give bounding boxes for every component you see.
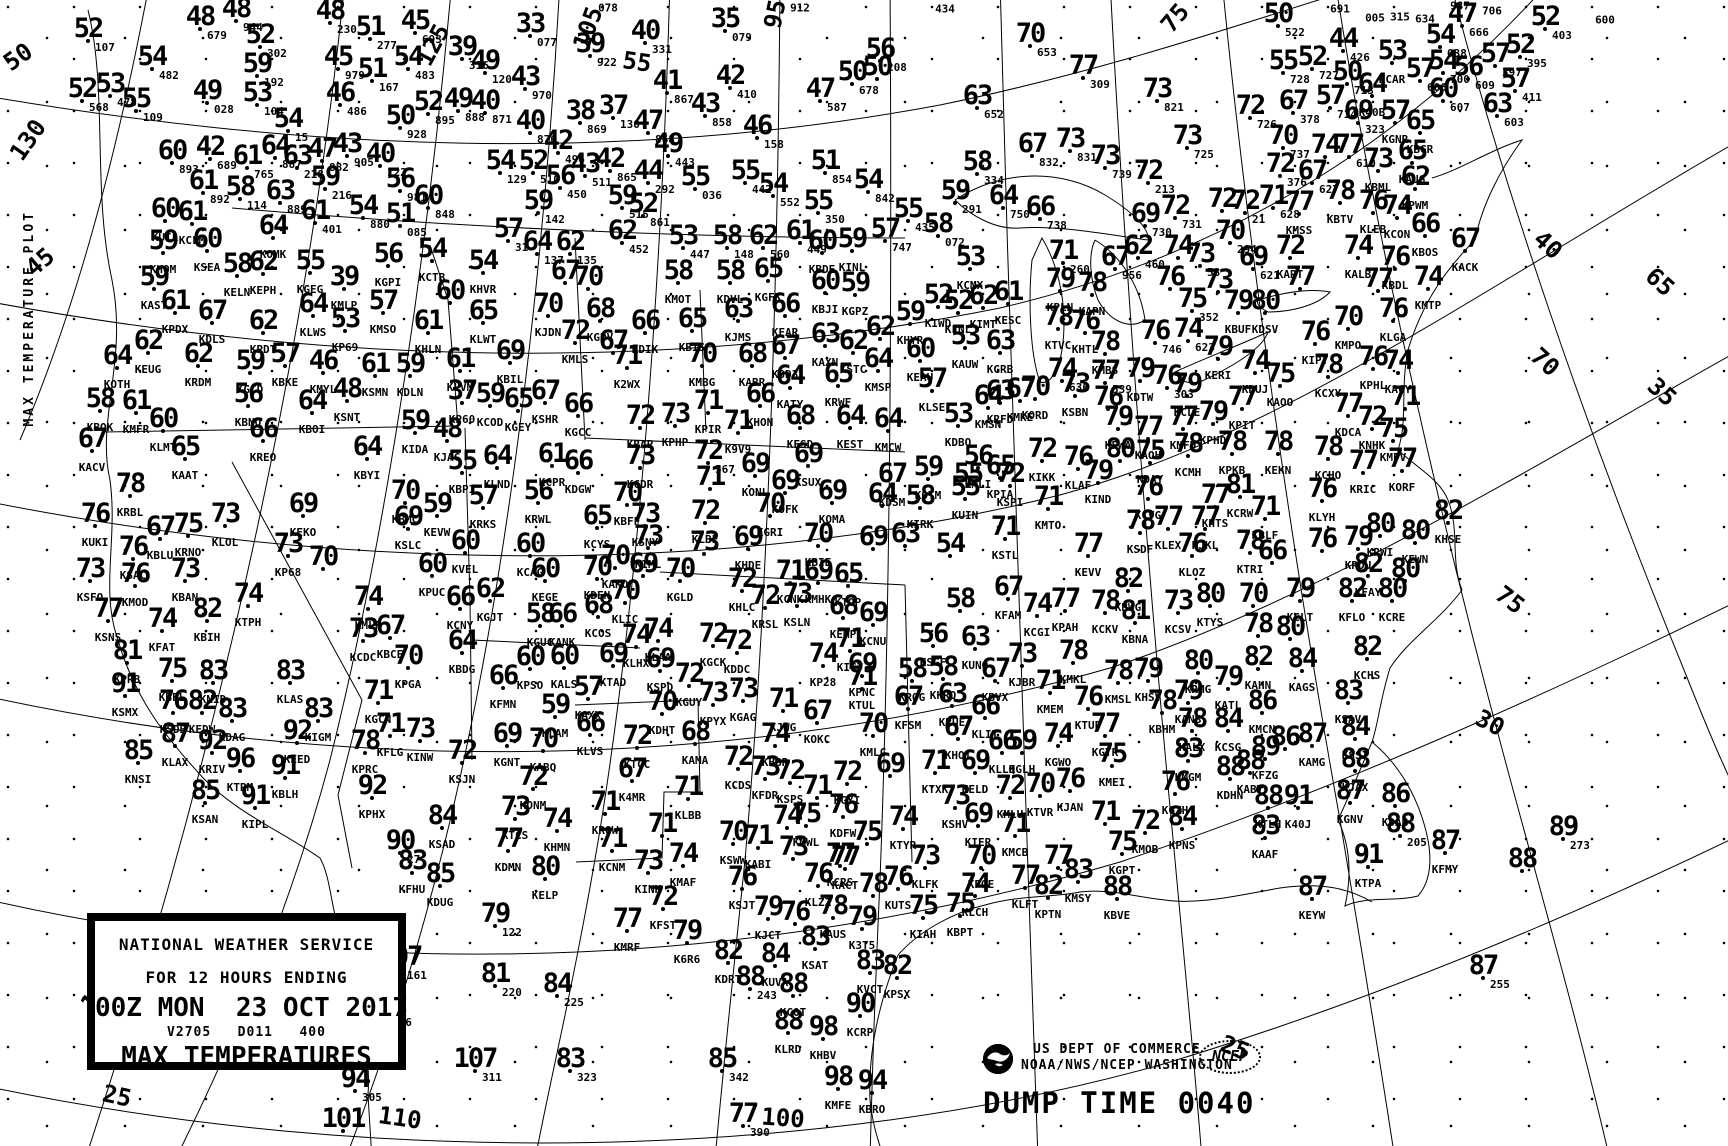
station-dot xyxy=(646,871,650,875)
station-dot xyxy=(1056,327,1060,331)
station-aux: 167 xyxy=(379,82,399,93)
station-dot xyxy=(756,846,760,850)
station-dot xyxy=(963,497,967,501)
station-dot xyxy=(1076,880,1080,884)
station-dot xyxy=(234,19,238,23)
station-dot xyxy=(1396,371,1400,375)
station-dot xyxy=(376,701,380,705)
station-id: KMSY xyxy=(1065,893,1092,904)
station-dot xyxy=(378,164,382,168)
station-dot xyxy=(1390,61,1394,65)
station-dot xyxy=(1143,831,1147,835)
station-dot xyxy=(1013,834,1017,838)
station-dot xyxy=(880,504,884,508)
station-aux: 731 xyxy=(1182,219,1202,230)
station-id: KBLU xyxy=(147,550,174,561)
station-id: KLVS xyxy=(577,746,604,757)
station-id: KVEL xyxy=(452,564,479,575)
station-dot xyxy=(783,314,787,318)
station-id: KBJI xyxy=(812,304,839,315)
station-dot xyxy=(1185,394,1189,398)
station-dot xyxy=(813,947,817,951)
station-dot xyxy=(345,154,349,158)
station-dot xyxy=(795,604,799,608)
station-dot xyxy=(741,699,745,703)
station-dot xyxy=(625,503,629,507)
station-aux: 871 xyxy=(492,114,512,125)
station-dot xyxy=(1006,302,1010,306)
station-dot xyxy=(1463,249,1467,253)
station-dot xyxy=(975,172,979,176)
station-dot xyxy=(740,589,744,593)
station-dot xyxy=(278,201,282,205)
station-aux: 848 xyxy=(435,209,455,220)
station-dot xyxy=(313,221,317,225)
station-dot xyxy=(460,651,464,655)
station-dot xyxy=(1186,454,1190,458)
station-id: KCDS xyxy=(725,780,752,791)
station-dot xyxy=(323,187,327,191)
station-dot xyxy=(353,1089,357,1093)
station-dot xyxy=(1291,111,1295,115)
station-dot xyxy=(170,161,174,165)
station-dot xyxy=(583,174,587,178)
station-id: KRBL xyxy=(117,507,144,518)
station-dot xyxy=(513,817,517,821)
station-dot xyxy=(906,219,910,223)
station-dot xyxy=(871,547,875,551)
station-dot xyxy=(1356,121,1360,125)
station-id: KACV xyxy=(79,462,106,473)
station-dot xyxy=(553,715,557,719)
station-dot xyxy=(406,527,410,531)
station-dot xyxy=(528,34,532,38)
station-dot xyxy=(731,842,735,846)
station-dot xyxy=(246,604,250,608)
station-aux: 120 xyxy=(492,74,512,85)
station-dot xyxy=(736,431,740,435)
station-dot xyxy=(896,887,900,891)
ncep-logo: NCEP xyxy=(1199,1040,1261,1074)
station-dot xyxy=(1155,99,1159,103)
station-id: KHLC xyxy=(729,602,756,613)
station-dot xyxy=(1423,234,1427,238)
station-id: KCSV xyxy=(1165,624,1192,635)
station-dot xyxy=(170,679,174,683)
station-dot xyxy=(426,331,430,335)
station-dot xyxy=(1348,801,1352,805)
station-id: KTAD xyxy=(600,677,627,688)
station-id: KP68 xyxy=(275,567,302,578)
station-dot xyxy=(1310,67,1314,71)
station-dot xyxy=(1270,561,1274,565)
station-id: KCNM xyxy=(599,862,626,873)
map-title-vertical: MAX TEMPERATURE PLOT xyxy=(22,210,37,427)
station-aux: 309 xyxy=(1090,79,1110,90)
station-dot xyxy=(963,346,967,350)
station-dot xyxy=(741,1124,745,1128)
station-id: KPDX xyxy=(162,324,189,335)
station-id: KP28 xyxy=(810,677,837,688)
station-dot xyxy=(483,71,487,75)
station-dot xyxy=(1240,407,1244,411)
station-dot xyxy=(1345,82,1349,86)
station-dot xyxy=(1138,379,1142,383)
station-dot xyxy=(816,544,820,548)
station-dot xyxy=(286,554,290,558)
station-dot xyxy=(1168,287,1172,291)
station-dot xyxy=(641,574,645,578)
station-id: KCRW xyxy=(1227,508,1254,519)
station-id: KIPL xyxy=(242,819,269,830)
station-dot xyxy=(1173,216,1177,220)
station-dot xyxy=(930,389,934,393)
station-dot xyxy=(848,426,852,430)
station-aux-fragment: 706 xyxy=(1482,6,1502,17)
station-dot xyxy=(1000,751,1004,755)
station-dot xyxy=(576,414,580,418)
station-id: KSDF xyxy=(1127,544,1154,555)
station-aux: 291 xyxy=(962,204,982,215)
station-id: KIAH xyxy=(910,929,937,940)
station-id: KMFE xyxy=(825,1100,852,1111)
station-dot xyxy=(681,864,685,868)
station-dot xyxy=(568,1069,572,1073)
station-dot xyxy=(610,849,614,853)
station-dot xyxy=(1081,76,1085,80)
station-id: KGAG xyxy=(730,712,757,723)
station-dot xyxy=(133,584,137,588)
station-id: KSLN xyxy=(784,617,811,628)
station-dot xyxy=(328,21,332,25)
station-id: KBYI xyxy=(354,470,381,481)
station-dot xyxy=(643,41,647,45)
station-dot xyxy=(1226,729,1230,733)
legend-valid-time: 00Z MON 23 OCT 2017 xyxy=(95,993,398,1023)
station-dot xyxy=(1320,499,1324,503)
station-dot xyxy=(573,341,577,345)
station-dot xyxy=(398,224,402,228)
station-id: KRIC xyxy=(1350,484,1377,495)
station-dot xyxy=(693,742,697,746)
legend-meta: V2705 D011 400 xyxy=(95,1025,398,1040)
station-dot xyxy=(283,364,287,368)
station-dot xyxy=(678,579,682,583)
station-dot xyxy=(1398,834,1402,838)
station-dot xyxy=(531,787,535,791)
station-aux: 273 xyxy=(1570,840,1590,851)
station-aux: 452 xyxy=(629,244,649,255)
station-dot xyxy=(1073,394,1077,398)
station-id: KHBV xyxy=(810,1050,837,1061)
station-aux: 411 xyxy=(1522,92,1542,103)
station-dot xyxy=(1238,495,1242,499)
station-dot xyxy=(473,1069,477,1073)
station-id: KLSE xyxy=(919,402,946,413)
station-dot xyxy=(1326,457,1330,461)
station-dot xyxy=(1153,341,1157,345)
station-id: KLAX xyxy=(162,757,189,768)
station-dot xyxy=(1400,469,1404,473)
station-dot xyxy=(1361,471,1365,475)
station-id: KAAF xyxy=(1252,849,1279,860)
station-dot xyxy=(271,236,275,240)
station-dot xyxy=(1020,664,1024,668)
station-id: KORF xyxy=(1389,482,1416,493)
station-dot xyxy=(361,639,365,643)
station-aux: 892 xyxy=(210,194,230,205)
station-aux-fragment: 315 xyxy=(1390,12,1410,23)
station-aux: 403 xyxy=(1552,30,1572,41)
station-dot xyxy=(1371,367,1375,371)
station-aux: 342 xyxy=(729,1072,749,1083)
station-dot xyxy=(843,867,847,871)
station-aux-fragment: 078 xyxy=(598,3,618,14)
station-id: KSJT xyxy=(729,900,756,911)
station-id: KPNS xyxy=(1169,840,1196,851)
station-aux: 225 xyxy=(564,997,584,1008)
station-dot xyxy=(1106,407,1110,411)
station-dot xyxy=(1096,481,1100,485)
station-dot xyxy=(161,251,165,255)
station-dot xyxy=(1296,806,1300,810)
station-dot xyxy=(1126,589,1130,593)
station-dot xyxy=(1176,611,1180,615)
station-aux: 738 xyxy=(1047,220,1067,231)
station-id: KBRO xyxy=(859,1104,886,1115)
station-id: KSAD xyxy=(429,839,456,850)
station-dot xyxy=(901,827,905,831)
station-dot xyxy=(768,514,772,518)
station-dot xyxy=(983,716,987,720)
station-dot xyxy=(1090,293,1094,297)
station-dot xyxy=(931,644,935,648)
station-dot xyxy=(1116,427,1120,431)
station-dot xyxy=(758,404,762,408)
station-dot xyxy=(1495,114,1499,118)
station-dot xyxy=(753,474,757,478)
station-aux: 482 xyxy=(159,70,179,81)
station-dot xyxy=(1038,217,1042,221)
station-dot xyxy=(230,719,234,723)
station-dot xyxy=(1068,149,1072,153)
station-dot xyxy=(596,615,600,619)
station-aux: 854 xyxy=(832,174,852,185)
station-dot xyxy=(708,487,712,491)
station-dot xyxy=(506,239,510,243)
station-dot xyxy=(1118,459,1122,463)
station-dot xyxy=(1281,71,1285,75)
station-aux: 739 xyxy=(1112,169,1132,180)
station-dot xyxy=(438,884,442,888)
station-dot xyxy=(506,849,510,853)
station-aux: 928 xyxy=(407,129,427,140)
station-dot xyxy=(816,581,820,585)
station-id: KINW xyxy=(407,752,434,763)
station-aux: 842 xyxy=(875,193,895,204)
station-dot xyxy=(361,216,365,220)
legend-title: NATIONAL WEATHER SERVICE xyxy=(95,935,398,954)
station-id: KAUW xyxy=(952,359,979,370)
station-dot xyxy=(343,329,347,333)
station-id: KDHT xyxy=(649,725,676,736)
station-aux: 142 xyxy=(545,214,565,225)
station-dot xyxy=(386,264,390,268)
station-id: KLBB xyxy=(675,810,702,821)
station-dot xyxy=(595,577,599,581)
station-dot xyxy=(261,331,265,335)
station-dot xyxy=(1198,264,1202,268)
station-aux: 109 xyxy=(143,112,163,123)
station-dot xyxy=(536,211,540,215)
station-dot xyxy=(200,711,204,715)
station-aux: 447 xyxy=(690,249,710,260)
station-dot xyxy=(1297,212,1301,216)
station-dot xyxy=(1186,339,1190,343)
station-id: KTVC xyxy=(1045,340,1072,351)
station-dot xyxy=(183,457,187,461)
station-id: KLFK xyxy=(912,879,939,890)
station-aux: 603 xyxy=(1504,117,1524,128)
station-id: KMRF xyxy=(614,942,641,953)
station-dot xyxy=(1391,319,1395,323)
station-id: KMFR xyxy=(123,424,150,435)
station-id: KGLD xyxy=(667,592,694,603)
station-dot xyxy=(493,924,497,928)
station-dot xyxy=(791,857,795,861)
station-dot xyxy=(1190,554,1194,558)
station-dot xyxy=(845,782,849,786)
station-id: KEYW xyxy=(1299,910,1326,921)
station-aux: 079 xyxy=(732,32,752,43)
station-aux: 956 xyxy=(1122,270,1142,281)
station-aux: 401 xyxy=(322,224,342,235)
station-aux-fragment: 005 xyxy=(1365,13,1385,24)
station-dot xyxy=(235,274,239,278)
station-id: KPAH xyxy=(1052,622,1079,633)
station-aux: 861 xyxy=(650,217,670,228)
station-id: KSMN xyxy=(362,387,389,398)
station-aux: 679 xyxy=(207,30,227,41)
station-dot xyxy=(1146,181,1150,185)
station-dot xyxy=(1376,169,1380,173)
station-aux: 522 xyxy=(1285,27,1305,38)
station-dot xyxy=(1248,551,1252,555)
station-dot xyxy=(903,544,907,548)
station-id: KFAT xyxy=(149,642,176,653)
station-dot xyxy=(255,103,259,107)
station-dot xyxy=(106,619,110,623)
station-id: KCDC xyxy=(350,652,377,663)
station-dot xyxy=(1251,267,1255,271)
station-dot xyxy=(1228,241,1232,245)
station-aux: 410 xyxy=(737,89,757,100)
station-dot xyxy=(818,99,822,103)
station-dot xyxy=(201,191,205,195)
station-dot xyxy=(1288,637,1292,641)
station-dot xyxy=(563,281,567,285)
station-id: KRDM xyxy=(185,377,212,388)
station-dot xyxy=(953,201,957,205)
station-id: KCRP xyxy=(847,1027,874,1038)
station-dot xyxy=(1133,621,1137,625)
station-id: KRSL xyxy=(752,619,779,630)
station-dot xyxy=(816,884,820,888)
station-dot xyxy=(766,279,770,283)
station-dot xyxy=(381,311,385,315)
station-dot xyxy=(578,121,582,125)
station-aux: 243 xyxy=(757,990,777,1001)
station-dot xyxy=(886,429,890,433)
station-id: KMEI xyxy=(1099,777,1126,788)
station-dot xyxy=(1263,517,1267,521)
station-dot xyxy=(921,916,925,920)
station-dot xyxy=(245,166,249,170)
station-dot xyxy=(1176,256,1180,260)
station-id: KLOL xyxy=(212,537,239,548)
station-dot xyxy=(841,815,845,819)
station-id: KSTL xyxy=(992,550,1019,561)
station-aux: 107 xyxy=(95,42,115,53)
station-dot xyxy=(90,449,94,453)
station-id: KUKI xyxy=(82,537,109,548)
station-dot xyxy=(1008,796,1012,800)
station-dot xyxy=(1248,771,1252,775)
station-aux: 746 xyxy=(1162,344,1182,355)
station-dot xyxy=(1211,422,1215,426)
station-id: KMSL xyxy=(1105,694,1132,705)
station-id: KPIR xyxy=(695,424,722,435)
station-dot xyxy=(823,171,827,175)
station-dot xyxy=(536,501,540,505)
station-dot xyxy=(203,801,207,805)
station-dot xyxy=(535,252,539,256)
station-id: KHTL xyxy=(1072,344,1099,355)
station-id: KACK xyxy=(1452,262,1479,273)
station-id: K6R6 xyxy=(674,954,701,965)
station-dot xyxy=(690,329,694,333)
station-dot xyxy=(93,524,97,528)
station-aux: 693 xyxy=(422,34,442,45)
station-id: KPSO xyxy=(517,680,544,691)
station-dot xyxy=(88,579,92,583)
station-dot xyxy=(1033,397,1037,401)
station-dot xyxy=(308,271,312,275)
station-dot xyxy=(1365,657,1369,661)
station-id: KMOD xyxy=(122,597,149,608)
station-id: KBTV xyxy=(1327,214,1354,225)
station-dot xyxy=(755,136,759,140)
station-id: KHVR xyxy=(470,284,497,295)
station-id: KMSO xyxy=(370,324,397,335)
station-dot xyxy=(823,291,827,295)
station-dot xyxy=(365,457,369,461)
station-dot xyxy=(1561,837,1565,841)
station-aux: 450 xyxy=(567,189,587,200)
station-dot xyxy=(771,194,775,198)
station-id: KORD xyxy=(1022,410,1049,421)
station-dot xyxy=(736,319,740,323)
station-id: KDSV xyxy=(1252,324,1279,335)
station-id: KCNU xyxy=(860,636,887,647)
station-id: KLCH xyxy=(962,907,989,918)
station-id: KRFD xyxy=(987,414,1014,425)
station-dot xyxy=(1186,759,1190,763)
station-id: KGJT xyxy=(477,612,504,623)
station-dot xyxy=(798,426,802,430)
station-dot xyxy=(1208,604,1212,608)
station-aux: 922 xyxy=(597,57,617,68)
